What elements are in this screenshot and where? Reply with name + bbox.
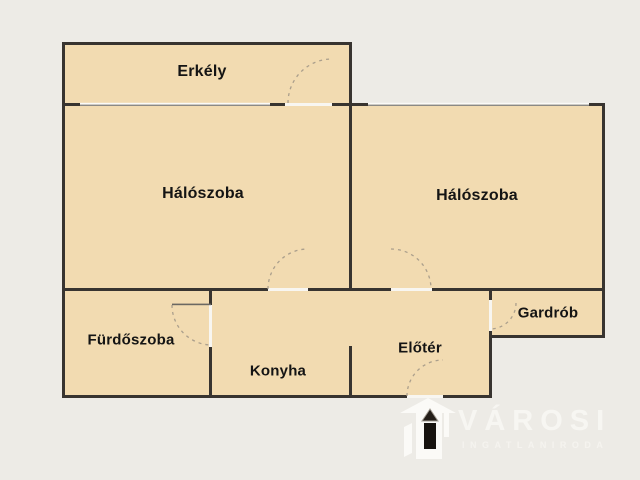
room-label-haloszoba-left: Hálószoba [162, 185, 244, 203]
door-opening-gardrob [489, 300, 492, 331]
room-label-gardrob: Gardrób [518, 305, 579, 322]
room-label-eloter: Előtér [398, 340, 442, 357]
window-glass-left-bedroom [80, 103, 270, 105]
window-line-left-bedroom [80, 105, 270, 106]
wall-left-outer [62, 42, 65, 398]
wall-stub [352, 103, 368, 106]
door-opening-right-bedroom [391, 288, 432, 291]
room-label-furdoszoba: Fürdőszoba [88, 332, 175, 349]
building-icon [404, 423, 412, 457]
room-label-haloszoba-right: Hálószoba [436, 187, 518, 205]
watermark-logo [398, 396, 460, 462]
wall-bedroom-bottom-left [62, 288, 268, 291]
wall-bath-divider-stub [209, 288, 212, 305]
watermark-tagline-text: INGATLANIRODA [462, 440, 608, 450]
door-opening-balcony [285, 103, 332, 106]
wall-stub [270, 103, 285, 106]
door-icon [424, 423, 436, 449]
wall-balcony-top [62, 42, 352, 45]
floorplan-page: Erkély Hálószoba Hálószoba Fürdőszoba Ko… [0, 0, 640, 480]
wall-kitchen-divider [349, 346, 352, 398]
room-label-konyha: Konyha [250, 363, 306, 380]
wall-gardrob-bottom [492, 335, 605, 338]
wall-bath-divider [209, 347, 212, 398]
building-icon [444, 413, 449, 437]
wall-right-outer [602, 103, 605, 338]
door-opening-bathroom [209, 305, 212, 347]
door-opening-left-bedroom [268, 288, 308, 291]
window-glass-right-bedroom [368, 103, 589, 105]
wall-bottom-left [62, 395, 407, 398]
wall-bedroom-bottom-right [432, 288, 605, 291]
wall-eloter-right-stub [489, 288, 492, 300]
room-fill-bedrooms [62, 104, 605, 291]
wall-eloter-right [489, 331, 492, 398]
watermark: VÁROSI INGATLANIRODA [396, 394, 636, 464]
door-leaf-bathroom [172, 304, 211, 306]
room-label-erkely: Erkély [177, 63, 226, 81]
wall-bedroom-divider [349, 42, 352, 291]
window-line-right-bedroom [368, 105, 589, 106]
watermark-brand-text: VÁROSI [458, 405, 611, 438]
